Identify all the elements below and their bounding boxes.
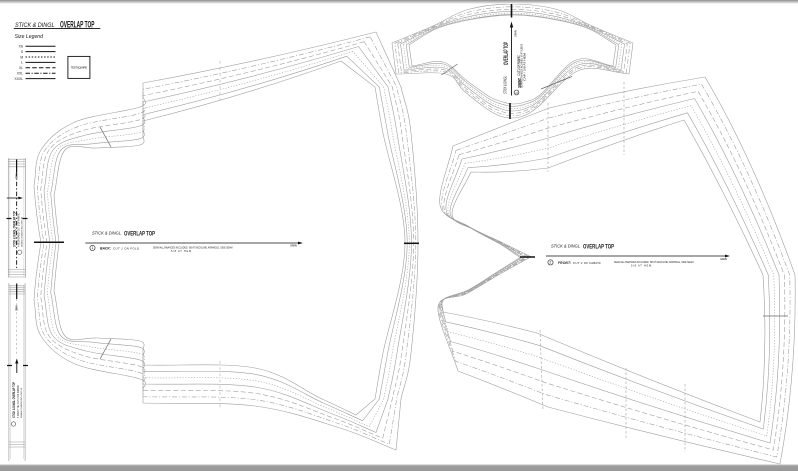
- svg-text:GRAIN: GRAIN: [15, 173, 18, 179]
- svg-text:STICK & DINGL OVERLAP TOP: STICK & DINGL OVERLAP TOP: [13, 211, 17, 247]
- svg-text:SEAM ALLOWANCES INCLUDED 3/8: SEAM ALLOWANCES INCLUDED 3/8: [20, 387, 23, 418]
- svg-text:FRONT:: FRONT:: [558, 261, 571, 265]
- svg-text:XXL: XXL: [17, 72, 24, 76]
- svg-text:STICK & DINGL: STICK & DINGL: [92, 231, 121, 236]
- svg-text:CUT 1 ON FOLD: CUT 1 ON FOLD: [113, 246, 139, 250]
- svg-text:OVERLAP TOP: OVERLAP TOP: [583, 243, 614, 250]
- svg-text:5/8 AT HEM: 5/8 AT HEM: [171, 249, 191, 253]
- svg-text:M: M: [20, 55, 23, 59]
- svg-text:CAP / 5/8 AT HEM: CAP / 5/8 AT HEM: [523, 53, 527, 81]
- svg-text:STICK & DINGL: STICK & DINGL: [551, 244, 580, 249]
- svg-text:STICK & DINGL: STICK & DINGL: [15, 22, 55, 29]
- svg-text:XS: XS: [19, 45, 24, 49]
- svg-text:3: 3: [515, 92, 519, 94]
- svg-text:CUT 2 OF FABRIC: CUT 2 OF FABRIC: [573, 261, 602, 265]
- svg-text:GRAIN: GRAIN: [720, 257, 727, 261]
- svg-text:GRAIN: GRAIN: [290, 244, 297, 248]
- svg-text:1: 1: [92, 246, 94, 250]
- svg-text:OVERLAP TOP: OVERLAP TOP: [124, 230, 155, 237]
- svg-text:4 NECK BAND: CUT 1 OF FABRIC: 4 NECK BAND: CUT 1 OF FABRIC: [18, 213, 21, 247]
- svg-text:SEAM ALLOWANCES INCLUDED 3/8: SEAM ALLOWANCES INCLUDED 3/8: [20, 216, 23, 247]
- svg-text:TEST SQUARE: TEST SQUARE: [71, 66, 87, 70]
- svg-text:XL: XL: [19, 66, 23, 70]
- svg-text:GRAIN: GRAIN: [514, 30, 518, 37]
- svg-text:L: L: [21, 61, 23, 65]
- svg-text:BACK:: BACK:: [100, 246, 111, 250]
- svg-text:2: 2: [550, 261, 552, 265]
- svg-text:STICK & DINGL OVERLAP TOP: STICK & DINGL OVERLAP TOP: [12, 382, 16, 418]
- svg-text:XXXL: XXXL: [15, 77, 24, 81]
- svg-text:SEAM ALLOWANCES INCLUDED. 3/8: SEAM ALLOWANCES INCLUDED. 3/8 AT NECKLIN…: [153, 246, 233, 250]
- svg-text:Size Legend: Size Legend: [15, 34, 45, 40]
- svg-text:GRAIN: GRAIN: [16, 305, 19, 311]
- svg-text:STICK & DINGL: STICK & DINGL: [503, 76, 508, 94]
- svg-text:OVERLAP TOP: OVERLAP TOP: [504, 42, 510, 65]
- svg-text:OVERLAP TOP: OVERLAP TOP: [60, 19, 95, 29]
- svg-text:5 WAIST TIE: CUT 2 OF FABRIC: 5 WAIST TIE: CUT 2 OF FABRIC: [17, 385, 20, 418]
- svg-text:5/8 AT HEM: 5/8 AT HEM: [631, 263, 651, 267]
- svg-text:SEAM ALLOWANCES INCLUDED. 3/8: SEAM ALLOWANCES INCLUDED. 3/8 AT NECKLIN…: [614, 260, 694, 264]
